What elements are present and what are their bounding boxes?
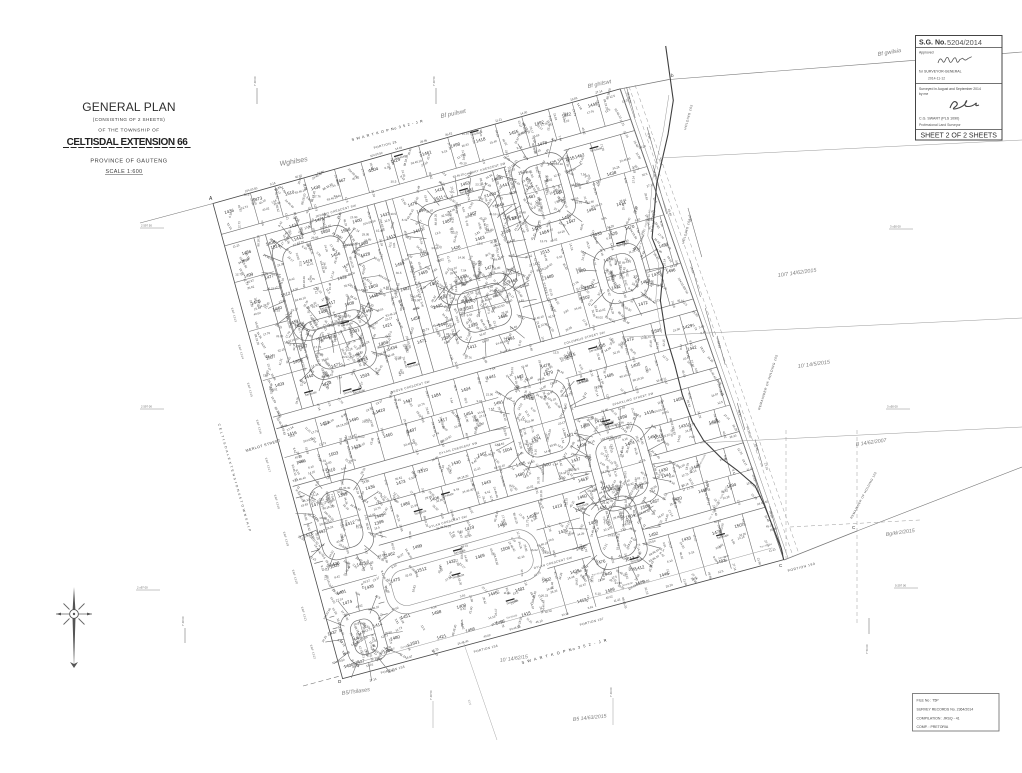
svg-text:93.46.10: 93.46.10 <box>333 330 337 342</box>
svg-text:24.46.40: 24.46.40 <box>442 286 446 298</box>
svg-text:8.42: 8.42 <box>485 376 489 382</box>
svg-text:45.10: 45.10 <box>677 299 685 303</box>
svg-text:23.17: 23.17 <box>494 608 498 616</box>
svg-text:8.42: 8.42 <box>460 277 464 283</box>
svg-text:3.81: 3.81 <box>253 297 257 303</box>
svg-text:32.15: 32.15 <box>662 339 666 347</box>
svg-text:45.10: 45.10 <box>459 161 467 165</box>
svg-text:3.81: 3.81 <box>392 242 396 248</box>
svg-text:12.5: 12.5 <box>244 192 250 196</box>
svg-text:16.97: 16.97 <box>655 342 659 350</box>
svg-text:11.21: 11.21 <box>356 525 363 529</box>
svg-text:17.76: 17.76 <box>464 356 472 360</box>
svg-text:7.54: 7.54 <box>355 518 361 522</box>
svg-text:14.16: 14.16 <box>537 220 541 228</box>
svg-text:34.26: 34.26 <box>460 619 464 627</box>
svg-text:23.17: 23.17 <box>475 182 483 186</box>
svg-text:24.46.40: 24.46.40 <box>339 486 351 490</box>
svg-text:40.02: 40.02 <box>339 437 343 445</box>
svg-text:32.15: 32.15 <box>564 497 568 505</box>
svg-text:24.46.40: 24.46.40 <box>489 288 501 292</box>
svg-text:12.73: 12.73 <box>525 519 529 527</box>
svg-text:6.10: 6.10 <box>487 308 491 314</box>
svg-text:45.10: 45.10 <box>566 159 570 167</box>
svg-text:32.15: 32.15 <box>276 334 284 338</box>
svg-text:21.90: 21.90 <box>602 501 610 505</box>
svg-text:2014-11-12: 2014-11-12 <box>928 77 945 81</box>
svg-text:45.10: 45.10 <box>479 216 487 220</box>
svg-text:35.62: 35.62 <box>530 548 538 552</box>
svg-text:2 597 50: 2 597 50 <box>141 224 152 228</box>
svg-text:45.10: 45.10 <box>609 578 617 582</box>
svg-text:16.97: 16.97 <box>444 524 452 528</box>
svg-text:Approved: Approved <box>919 51 934 55</box>
svg-text:29.95: 29.95 <box>362 232 370 236</box>
svg-text:14.16: 14.16 <box>706 498 710 506</box>
svg-text:27.14: 27.14 <box>316 352 324 356</box>
svg-text:26.33: 26.33 <box>362 419 370 423</box>
svg-text:19.83: 19.83 <box>608 533 616 537</box>
svg-text:30.5: 30.5 <box>650 280 654 286</box>
svg-text:6.10: 6.10 <box>457 530 463 534</box>
svg-text:40.02: 40.02 <box>624 499 628 507</box>
svg-text:7.54: 7.54 <box>689 435 695 439</box>
svg-text:40.02: 40.02 <box>357 435 365 439</box>
svg-text:5204/2014: 5204/2014 <box>947 38 982 47</box>
svg-text:93.46.10: 93.46.10 <box>618 267 622 279</box>
svg-text:30.5: 30.5 <box>307 307 311 313</box>
svg-text:88.18.20: 88.18.20 <box>302 276 306 288</box>
svg-text:5-297 00: 5-297 00 <box>895 584 906 588</box>
svg-text:by me: by me <box>919 92 928 96</box>
svg-text:30.5: 30.5 <box>391 180 397 184</box>
svg-text:14.16: 14.16 <box>520 569 524 577</box>
svg-text:14.16: 14.16 <box>446 324 454 328</box>
svg-text:15.48: 15.48 <box>621 203 625 211</box>
svg-text:26.33: 26.33 <box>267 287 275 291</box>
svg-text:SURVEY RECORDS No. 2364/2014: SURVEY RECORDS No. 2364/2014 <box>917 708 974 712</box>
svg-text:SCALE 1:600: SCALE 1:600 <box>105 169 142 175</box>
svg-text:30.5: 30.5 <box>390 212 396 216</box>
svg-text:12.73: 12.73 <box>360 479 368 483</box>
svg-text:C.G. SWART (PLS 1090): C.G. SWART (PLS 1090) <box>919 117 959 121</box>
svg-text:88.18.20: 88.18.20 <box>539 490 543 502</box>
svg-text:Professional Land Surveyor: Professional Land Surveyor <box>919 123 962 127</box>
svg-text:16.97: 16.97 <box>341 355 349 359</box>
svg-text:12.73: 12.73 <box>235 272 243 276</box>
svg-text:12.5: 12.5 <box>298 260 302 266</box>
svg-text:Y 49 00: Y 49 00 <box>609 687 613 697</box>
svg-text:21.90: 21.90 <box>350 215 358 219</box>
svg-text:12.5: 12.5 <box>477 242 483 246</box>
svg-text:12.5: 12.5 <box>553 350 559 354</box>
svg-text:COMPILATION : JRSQ - 41: COMPILATION : JRSQ - 41 <box>917 717 960 721</box>
svg-text:6.10: 6.10 <box>595 592 601 596</box>
svg-text:for SURVEYOR-GENERAL: for SURVEYOR-GENERAL <box>919 70 962 74</box>
svg-text:88.18.20: 88.18.20 <box>434 214 438 226</box>
svg-text:26.33: 26.33 <box>541 593 549 597</box>
svg-text:21.90: 21.90 <box>408 531 412 539</box>
svg-text:45.10: 45.10 <box>489 212 497 216</box>
svg-text:GENERAL PLAN: GENERAL PLAN <box>82 100 175 114</box>
svg-text:93.46.10: 93.46.10 <box>552 162 564 166</box>
svg-text:11.21: 11.21 <box>386 340 390 347</box>
svg-text:Surveyed in August and Septemb: Surveyed in August and September 2014 <box>919 87 981 91</box>
svg-text:8.42: 8.42 <box>679 344 683 350</box>
svg-text:29.95: 29.95 <box>311 236 319 240</box>
svg-text:(CONSISTING OF 2 SHEETS): (CONSISTING OF 2 SHEETS) <box>93 117 165 122</box>
svg-text:PROVINCE OF GAUTENG: PROVINCE OF GAUTENG <box>90 159 167 165</box>
svg-text:18.01: 18.01 <box>510 367 514 375</box>
svg-text:15.48: 15.48 <box>328 282 332 290</box>
svg-text:15.48: 15.48 <box>649 340 653 348</box>
svg-text:32.15: 32.15 <box>643 289 647 297</box>
svg-text:88.18.20: 88.18.20 <box>256 235 260 247</box>
svg-text:9.16: 9.16 <box>583 422 587 428</box>
svg-text:15.48: 15.48 <box>518 210 526 214</box>
svg-text:8.42: 8.42 <box>402 218 408 222</box>
svg-text:b: b <box>671 73 674 78</box>
svg-text:35.62: 35.62 <box>620 341 624 349</box>
svg-text:88.18.20: 88.18.20 <box>455 202 459 214</box>
svg-text:27.14: 27.14 <box>631 176 635 184</box>
svg-text:9.16: 9.16 <box>534 449 538 455</box>
svg-text:7.54: 7.54 <box>324 574 328 580</box>
svg-text:15.48: 15.48 <box>375 657 383 661</box>
svg-text:7.54: 7.54 <box>461 268 467 272</box>
svg-text:11.21: 11.21 <box>565 530 572 534</box>
svg-text:32.15: 32.15 <box>394 398 402 402</box>
svg-text:3 x50 00: 3 x50 00 <box>887 405 898 409</box>
svg-text:17.76: 17.76 <box>309 275 313 283</box>
svg-text:18.01: 18.01 <box>386 287 394 291</box>
svg-text:Y 48 50: Y 48 50 <box>432 76 436 86</box>
svg-text:30.5: 30.5 <box>396 271 402 275</box>
svg-text:12.73: 12.73 <box>540 239 548 243</box>
svg-text:19.83: 19.83 <box>575 578 579 586</box>
svg-text:30.5: 30.5 <box>563 111 569 115</box>
svg-text:104.03.50: 104.03.50 <box>588 454 592 467</box>
svg-text:26.33: 26.33 <box>536 476 540 484</box>
svg-text:14.00: 14.00 <box>319 516 327 520</box>
svg-text:21.90: 21.90 <box>486 392 494 396</box>
svg-text:14.16: 14.16 <box>587 489 595 493</box>
svg-text:Y 48 00: Y 48 00 <box>253 76 257 86</box>
svg-text:14.00: 14.00 <box>458 255 466 259</box>
svg-text:12.73: 12.73 <box>237 221 241 229</box>
svg-text:COMP. : PRETORIA: COMP. : PRETORIA <box>917 725 949 729</box>
svg-text:OF THE TOWNSHIP OF: OF THE TOWNSHIP OF <box>98 128 159 134</box>
svg-text:8.42: 8.42 <box>563 403 567 409</box>
svg-text:15.48: 15.48 <box>376 229 384 233</box>
svg-text:SHEET 2 OF 2 SHEETS: SHEET 2 OF 2 SHEETS <box>920 133 997 140</box>
svg-text:15.48: 15.48 <box>550 582 554 590</box>
svg-text:3 x50 00: 3 x50 00 <box>890 225 901 229</box>
svg-text:14.00: 14.00 <box>299 227 303 235</box>
svg-text:24.46.40: 24.46.40 <box>454 281 458 293</box>
svg-text:18.01: 18.01 <box>634 478 638 486</box>
svg-text:Y 48 50: Y 48 50 <box>429 690 433 700</box>
svg-text:FILE No : T5P: FILE No : T5P <box>917 699 940 703</box>
svg-text:Y 50 00: Y 50 00 <box>865 644 869 654</box>
svg-text:26.33: 26.33 <box>561 394 569 398</box>
svg-text:34.26: 34.26 <box>543 551 551 555</box>
svg-text:21.90: 21.90 <box>486 228 494 232</box>
svg-text:S.G. No.: S.G. No. <box>919 40 946 47</box>
svg-text:Y 48 00: Y 48 00 <box>181 616 185 626</box>
svg-text:CELTISDAL EXTENSION 66: CELTISDAL EXTENSION 66 <box>67 137 189 148</box>
svg-text:11.21: 11.21 <box>299 379 303 386</box>
svg-text:34.26: 34.26 <box>431 246 439 250</box>
svg-text:3.81: 3.81 <box>321 459 327 463</box>
svg-text:17.76: 17.76 <box>314 345 322 349</box>
svg-text:9.16: 9.16 <box>500 350 506 354</box>
svg-text:93.46.10: 93.46.10 <box>399 299 403 311</box>
svg-text:16.97: 16.97 <box>462 132 470 136</box>
svg-text:26.33: 26.33 <box>537 170 541 178</box>
svg-text:2 597 00: 2 597 00 <box>141 405 152 409</box>
svg-text:18.01: 18.01 <box>623 471 627 479</box>
svg-text:12.73: 12.73 <box>523 385 531 389</box>
svg-text:32.15: 32.15 <box>273 308 281 312</box>
svg-text:2 x97 00: 2 x97 00 <box>137 586 148 590</box>
svg-text:9.16: 9.16 <box>477 399 483 403</box>
svg-text:18.01: 18.01 <box>575 200 583 204</box>
svg-text:3.81: 3.81 <box>380 254 384 260</box>
